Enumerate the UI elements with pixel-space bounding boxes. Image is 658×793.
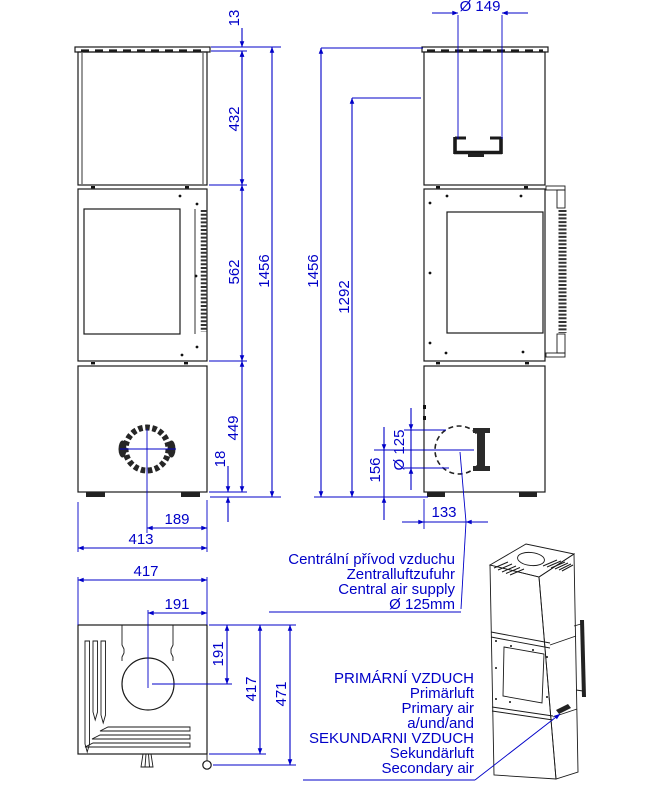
dim-front-body-width: 413 — [128, 531, 153, 548]
dim-front-lower-block: 449 — [225, 415, 242, 440]
dim-front-top-plate: 13 — [226, 10, 243, 27]
dim-side-flue-axis-height: 1292 — [336, 280, 353, 313]
combustion-air-line-7: Secondary air — [381, 760, 474, 777]
central-air-leader-upper — [460, 452, 466, 522]
dim-front-inlet-offset: 189 — [164, 511, 189, 528]
dim-side-inlet-depth: 133 — [431, 504, 456, 521]
side-screws — [429, 195, 525, 355]
front-feet — [86, 492, 200, 497]
dim-side-total-height: 1456 — [305, 254, 322, 287]
dim-bottom-total-depth: 471 — [273, 681, 290, 706]
side-upper-block — [424, 52, 545, 185]
bottom-grate-bars — [85, 727, 190, 747]
front-middle-block — [78, 189, 207, 361]
persp-flue-circle — [517, 551, 545, 567]
bottom-rod-end — [203, 761, 211, 769]
front-joint-marks — [91, 186, 189, 364]
side-view-dimensions: Ø 149 1456 1292 156 Ø 125 133 — [305, 0, 528, 609]
persp-air-lever — [556, 704, 571, 714]
dim-bottom-depth: 417 — [243, 676, 260, 701]
persp-front-face — [490, 565, 556, 779]
side-door-handle — [546, 186, 565, 357]
dim-front-middle-block: 562 — [226, 259, 243, 284]
persp-window — [503, 647, 544, 703]
technical-drawing: 13 432 562 449 18 1456 189 413 — [0, 0, 658, 793]
side-middle-block — [424, 189, 545, 361]
bottom-view — [78, 625, 211, 769]
central-air-note: Centrální přívod vzduchu Zentralluftzufu… — [269, 551, 461, 613]
dim-front-foot-height: 18 — [212, 451, 229, 468]
dim-side-inlet-diameter: Ø 125 — [391, 430, 408, 471]
perspective-view — [475, 544, 584, 780]
combustion-air-note: PRIMÁRNÍ VZDUCH Primärluft Primary air a… — [303, 670, 475, 780]
side-window — [447, 212, 543, 333]
dim-front-total-height: 1456 — [256, 254, 273, 287]
dim-side-flue-diameter: Ø 149 — [460, 0, 501, 15]
side-inlet-bracket — [473, 428, 490, 471]
front-upper-block — [78, 52, 207, 185]
dim-bottom-inlet-offset-x: 191 — [164, 596, 189, 613]
persp-side-face — [539, 554, 578, 779]
front-door-glass — [84, 209, 180, 334]
front-view — [75, 47, 210, 533]
side-joint-marks — [423, 186, 529, 420]
dim-side-inlet-height: 156 — [367, 457, 384, 482]
dim-front-upper-block: 432 — [226, 106, 243, 131]
side-view — [422, 47, 565, 497]
side-feet — [427, 492, 537, 497]
bottom-knob — [141, 754, 153, 767]
side-flue-socket — [454, 137, 502, 157]
combustion-air-leader — [475, 714, 560, 780]
dim-bottom-width: 417 — [133, 563, 158, 580]
central-air-leader-lower — [461, 522, 466, 609]
dim-bottom-inlet-offset-y: 191 — [210, 641, 227, 666]
central-air-line-4: Ø 125mm — [389, 596, 455, 613]
